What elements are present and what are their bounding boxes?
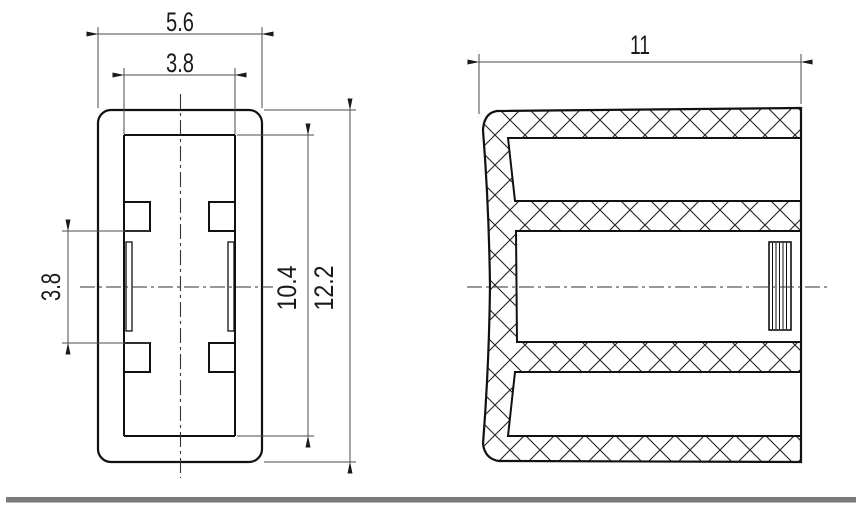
dim-label-slot-height: 3.8 xyxy=(36,273,66,301)
dim-label-outer-height: 12.2 xyxy=(309,266,339,311)
drawing-sheet: 5.6 3.8 3.8 10.4 12.2 xyxy=(0,0,862,514)
dim-label-overall-width: 11 xyxy=(630,30,650,60)
dim-label-inner-width: 3.8 xyxy=(166,48,194,78)
side-view xyxy=(467,108,827,462)
footer-divider xyxy=(6,497,856,503)
dim-label-inner-height: 10.4 xyxy=(272,266,302,311)
side-opening-bottom xyxy=(508,372,801,436)
side-serration-feature xyxy=(769,242,791,330)
technical-drawing-page: 5.6 3.8 3.8 10.4 12.2 xyxy=(0,0,862,514)
side-opening-top xyxy=(508,138,801,201)
dim-label-outer-width: 5.6 xyxy=(166,7,194,37)
